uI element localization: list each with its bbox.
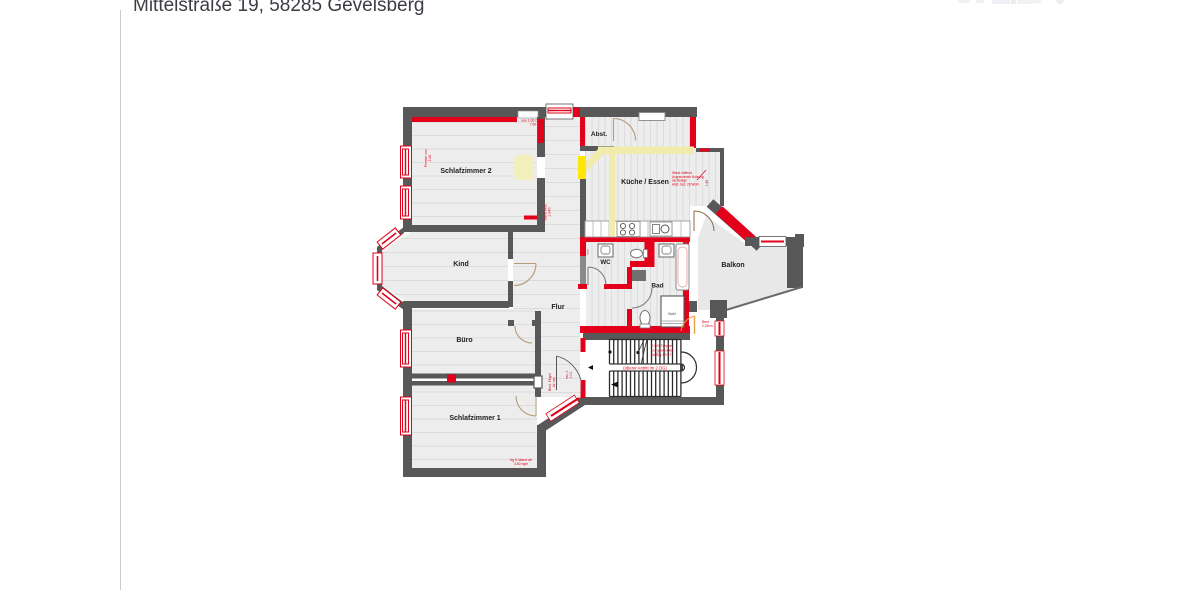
svg-text:Abst. bes. 28 WoFl.: Abst. bes. 28 WoFl. bbox=[672, 182, 700, 186]
svg-text:18 Stg 17/27: 18 Stg 17/27 bbox=[651, 353, 671, 357]
svg-text:1.34½: 1.34½ bbox=[548, 207, 552, 217]
svg-text:(oberer Antritt im 2.OG): (oberer Antritt im 2.OG) bbox=[623, 366, 667, 371]
svg-text:3.60 hgm: 3.60 hgm bbox=[514, 462, 528, 466]
svg-text:Abst.: Abst. bbox=[591, 131, 607, 138]
svg-text:WC: WC bbox=[600, 259, 611, 266]
svg-text:2.26: 2.26 bbox=[428, 155, 432, 162]
svg-text:1.01: 1.01 bbox=[569, 372, 573, 379]
svg-text:1.45: 1.45 bbox=[705, 180, 709, 187]
svg-text:Schlafzimmer 2: Schlafzimmer 2 bbox=[440, 168, 491, 175]
svg-text:neu: neu bbox=[586, 249, 590, 254]
svg-text:Küche / Essen: Küche / Essen bbox=[621, 179, 669, 186]
svg-text:2.OG-Treppe: 2.OG-Treppe bbox=[651, 344, 672, 348]
svg-text:7.90: 7.90 bbox=[530, 123, 537, 127]
svg-text:Büro: Büro bbox=[456, 337, 472, 344]
svg-text:Schlafzimmer 1: Schlafzimmer 1 bbox=[449, 415, 500, 422]
svg-text:Flur: Flur bbox=[551, 304, 564, 311]
svg-text:WaM: WaM bbox=[668, 312, 676, 316]
svg-text:2.28 m²: 2.28 m² bbox=[702, 324, 714, 328]
svg-text:Bad: Bad bbox=[651, 283, 663, 290]
svg-text:tür neu: tür neu bbox=[552, 377, 556, 388]
svg-text:Kind: Kind bbox=[453, 261, 469, 268]
svg-text:Balkon: Balkon bbox=[721, 262, 744, 269]
svg-text:1/2 gewendelt: 1/2 gewendelt bbox=[651, 349, 673, 353]
